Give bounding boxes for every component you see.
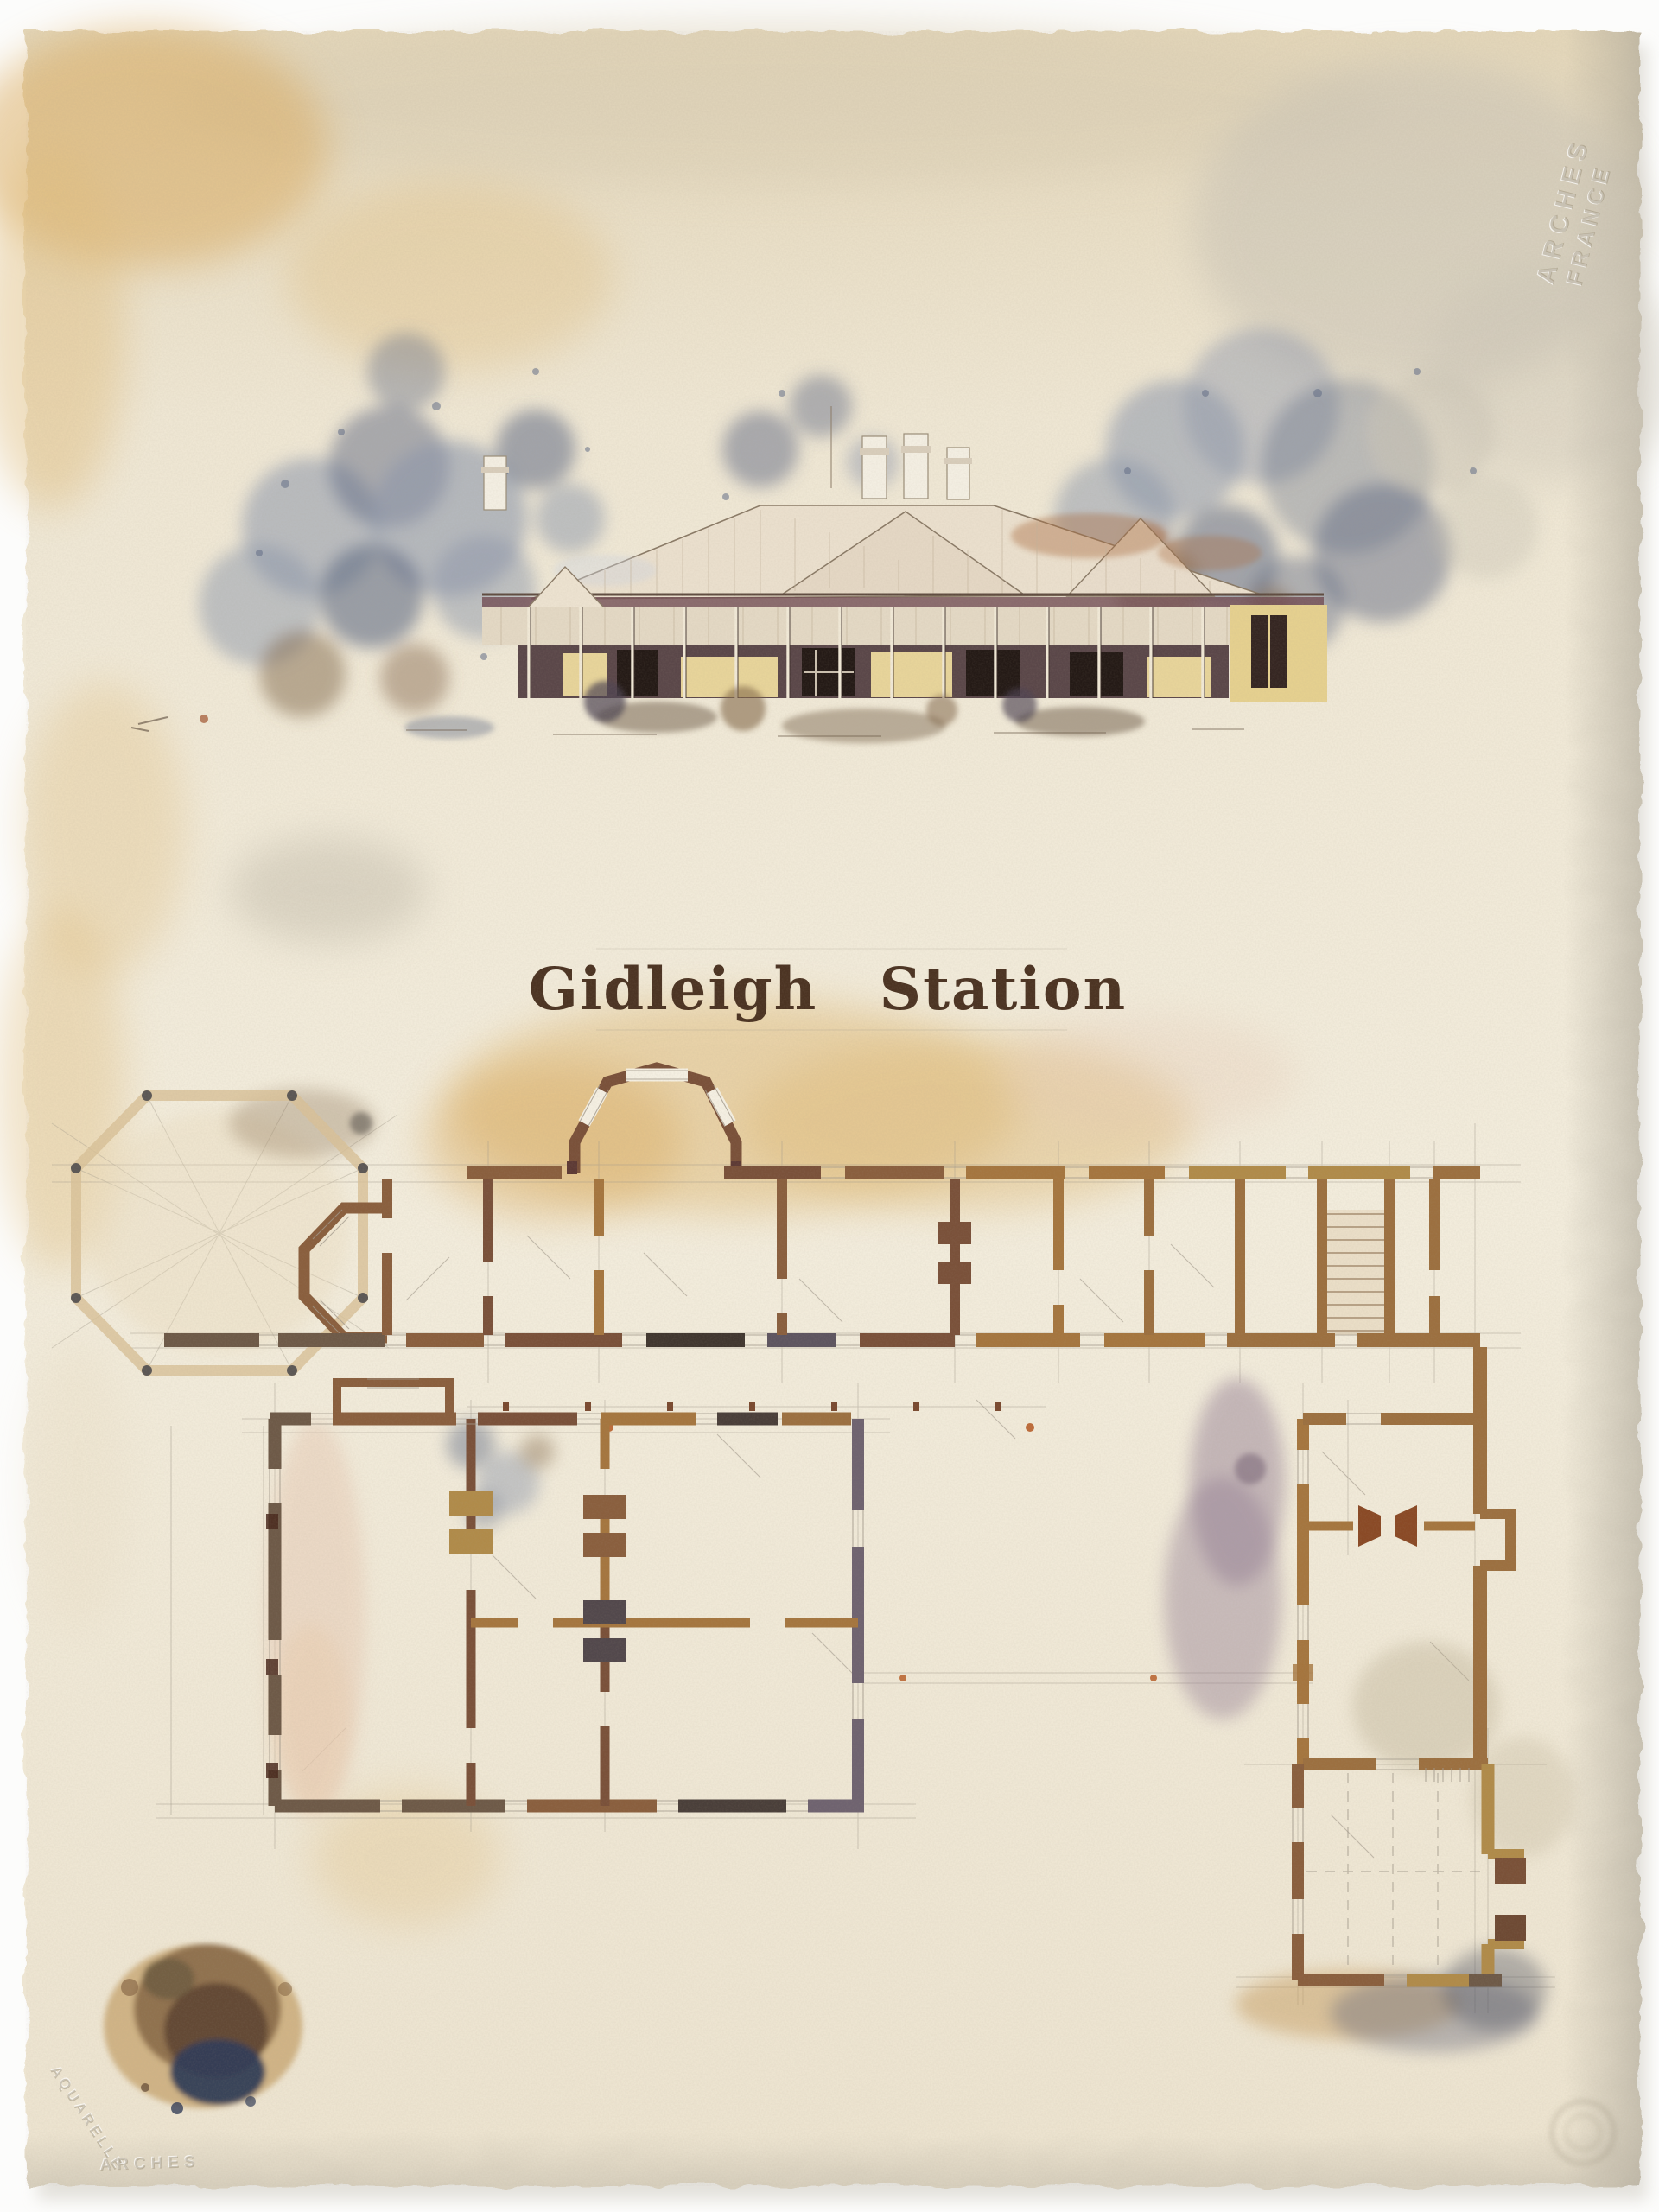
gidleigh-station-watercolour: Gidleigh Station <box>0 0 1659 2212</box>
artwork-scan: Gidleigh Station <box>0 0 1659 2212</box>
paper-grain-texture <box>26 31 1640 2186</box>
